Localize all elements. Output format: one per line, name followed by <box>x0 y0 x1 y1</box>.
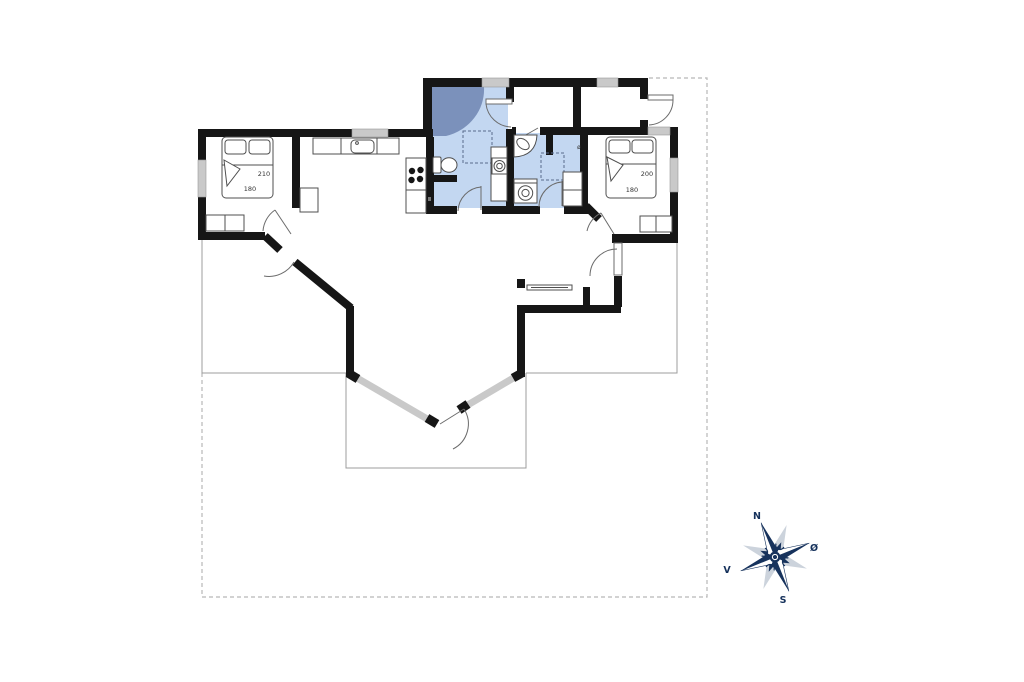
window-icon <box>482 78 509 87</box>
hall-door-leaf <box>614 243 622 275</box>
bedroom-right: 200 180 <box>606 137 672 232</box>
floor-drain-icon <box>428 197 431 201</box>
compass-rose: N Ø S V <box>723 509 823 606</box>
window-icon <box>352 129 388 137</box>
bed-width-label: 180 <box>626 186 638 194</box>
floor-plan-page: ø 210 180 200 180 <box>0 0 1024 682</box>
compass-north-label: N <box>753 511 761 522</box>
pillow-icon <box>632 140 653 153</box>
kitchen <box>300 138 426 213</box>
bay-window-icon <box>357 378 429 420</box>
entry-niche <box>527 285 572 290</box>
pillow-icon <box>225 140 246 154</box>
compass-star <box>727 509 823 605</box>
bedroom-door-leaf <box>601 213 614 234</box>
bed-width-label: 180 <box>244 185 256 193</box>
pillow-icon <box>609 140 630 153</box>
window-icon <box>670 158 678 192</box>
entry-door-leaf <box>648 95 673 100</box>
kitchen-counter <box>406 158 426 213</box>
bathroom-door-leaf <box>486 99 512 104</box>
sink-icon <box>351 140 374 153</box>
bed-length-label: 210 <box>258 170 270 178</box>
bathroom-cabinet <box>563 172 582 206</box>
bedroom-left: 210 180 <box>206 137 273 231</box>
pillow-icon <box>249 140 270 154</box>
kitchen-cabinet <box>300 188 318 212</box>
window-icon <box>597 78 618 87</box>
toilet-icon <box>433 157 441 173</box>
terrace-door-leaf <box>440 409 464 424</box>
floor-plan-drawing: ø 210 180 200 180 <box>0 0 1024 682</box>
terrace-outline <box>202 240 677 468</box>
bay-window-icon <box>466 377 515 406</box>
compass-east-label: Ø <box>810 543 818 554</box>
window-icon <box>198 160 206 197</box>
bed-length-label: 200 <box>641 170 653 178</box>
drain-symbol: ø <box>577 144 581 151</box>
compass-south-label: S <box>780 595 787 606</box>
bedroom-door-leaf <box>275 210 291 234</box>
window-icon <box>648 127 670 135</box>
compass-west-label: V <box>723 565 731 576</box>
toilet-icon <box>441 158 457 172</box>
